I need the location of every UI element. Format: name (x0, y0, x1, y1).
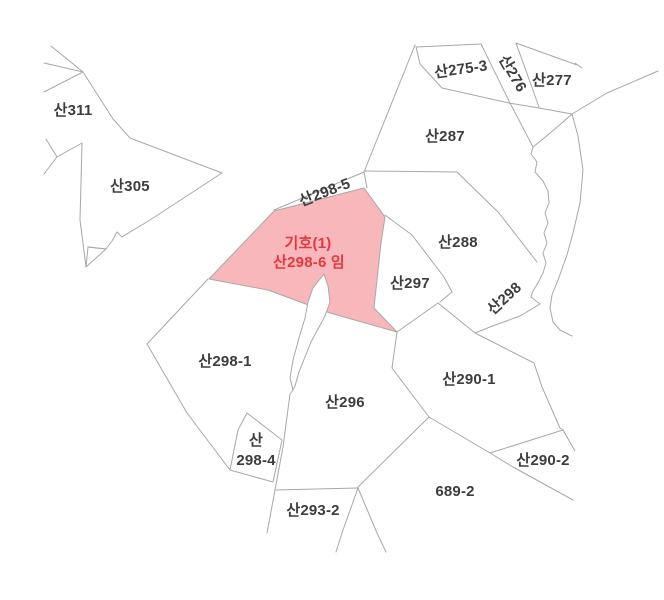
cadastral-map: 산311산305산275-3산276산277산287산298-5기호(1)산29… (0, 0, 664, 600)
boundary-line (147, 279, 208, 344)
boundary-line (336, 488, 358, 552)
parcel-label-산311: 산311 (54, 102, 93, 119)
parcel-label-산275-3: 산275-3 (433, 57, 488, 81)
parcel-label-산296: 산296 (325, 394, 365, 411)
boundary-line (475, 333, 575, 451)
parcel-label-산297: 산297 (390, 275, 430, 292)
boundary-line (533, 114, 572, 147)
boundary-line (397, 303, 475, 333)
boundary-line (516, 43, 577, 65)
parcel-label-689-2: 689-2 (435, 483, 474, 500)
boundary-line (392, 332, 429, 417)
parcel-label-산290-1: 산290-1 (442, 371, 495, 388)
parcel-label-산305: 산305 (110, 178, 150, 195)
boundary-line (44, 72, 83, 92)
parcel-label-산298: 산298 (484, 279, 525, 318)
boundary-line (44, 139, 57, 174)
boundary-line (416, 44, 481, 47)
parcel-label-기호(1): 기호(1) (285, 235, 332, 252)
parcel-label-298-4: 298-4 (236, 452, 276, 469)
parcel-label-산288: 산288 (438, 234, 478, 251)
parcel-label-산276: 산276 (495, 52, 530, 95)
boundary-line (86, 247, 106, 267)
boundary-line (357, 417, 429, 488)
boundary-line (358, 488, 386, 552)
boundary-line (575, 63, 582, 68)
boundary-line (88, 173, 222, 249)
map-canvas: 산311산305산275-3산276산277산287산298-5기호(1)산29… (0, 0, 664, 600)
parcel-label-산: 산 (249, 432, 263, 449)
boundary-line (275, 488, 358, 490)
boundary-line (57, 143, 86, 267)
parcel-label-산277: 산277 (532, 72, 572, 89)
boundary-line (490, 430, 563, 453)
parcel-label-산298-1: 산298-1 (198, 353, 251, 370)
boundary-line (364, 45, 415, 172)
boundary-line (83, 72, 222, 173)
parcel-label-산293-2: 산293-2 (286, 502, 339, 519)
parcel-label-산290-2: 산290-2 (516, 452, 569, 469)
parcel-label-산298-6 임: 산298-6 임 (273, 254, 345, 271)
parcel-label-산287: 산287 (425, 128, 465, 145)
stream-right-line (550, 114, 583, 336)
